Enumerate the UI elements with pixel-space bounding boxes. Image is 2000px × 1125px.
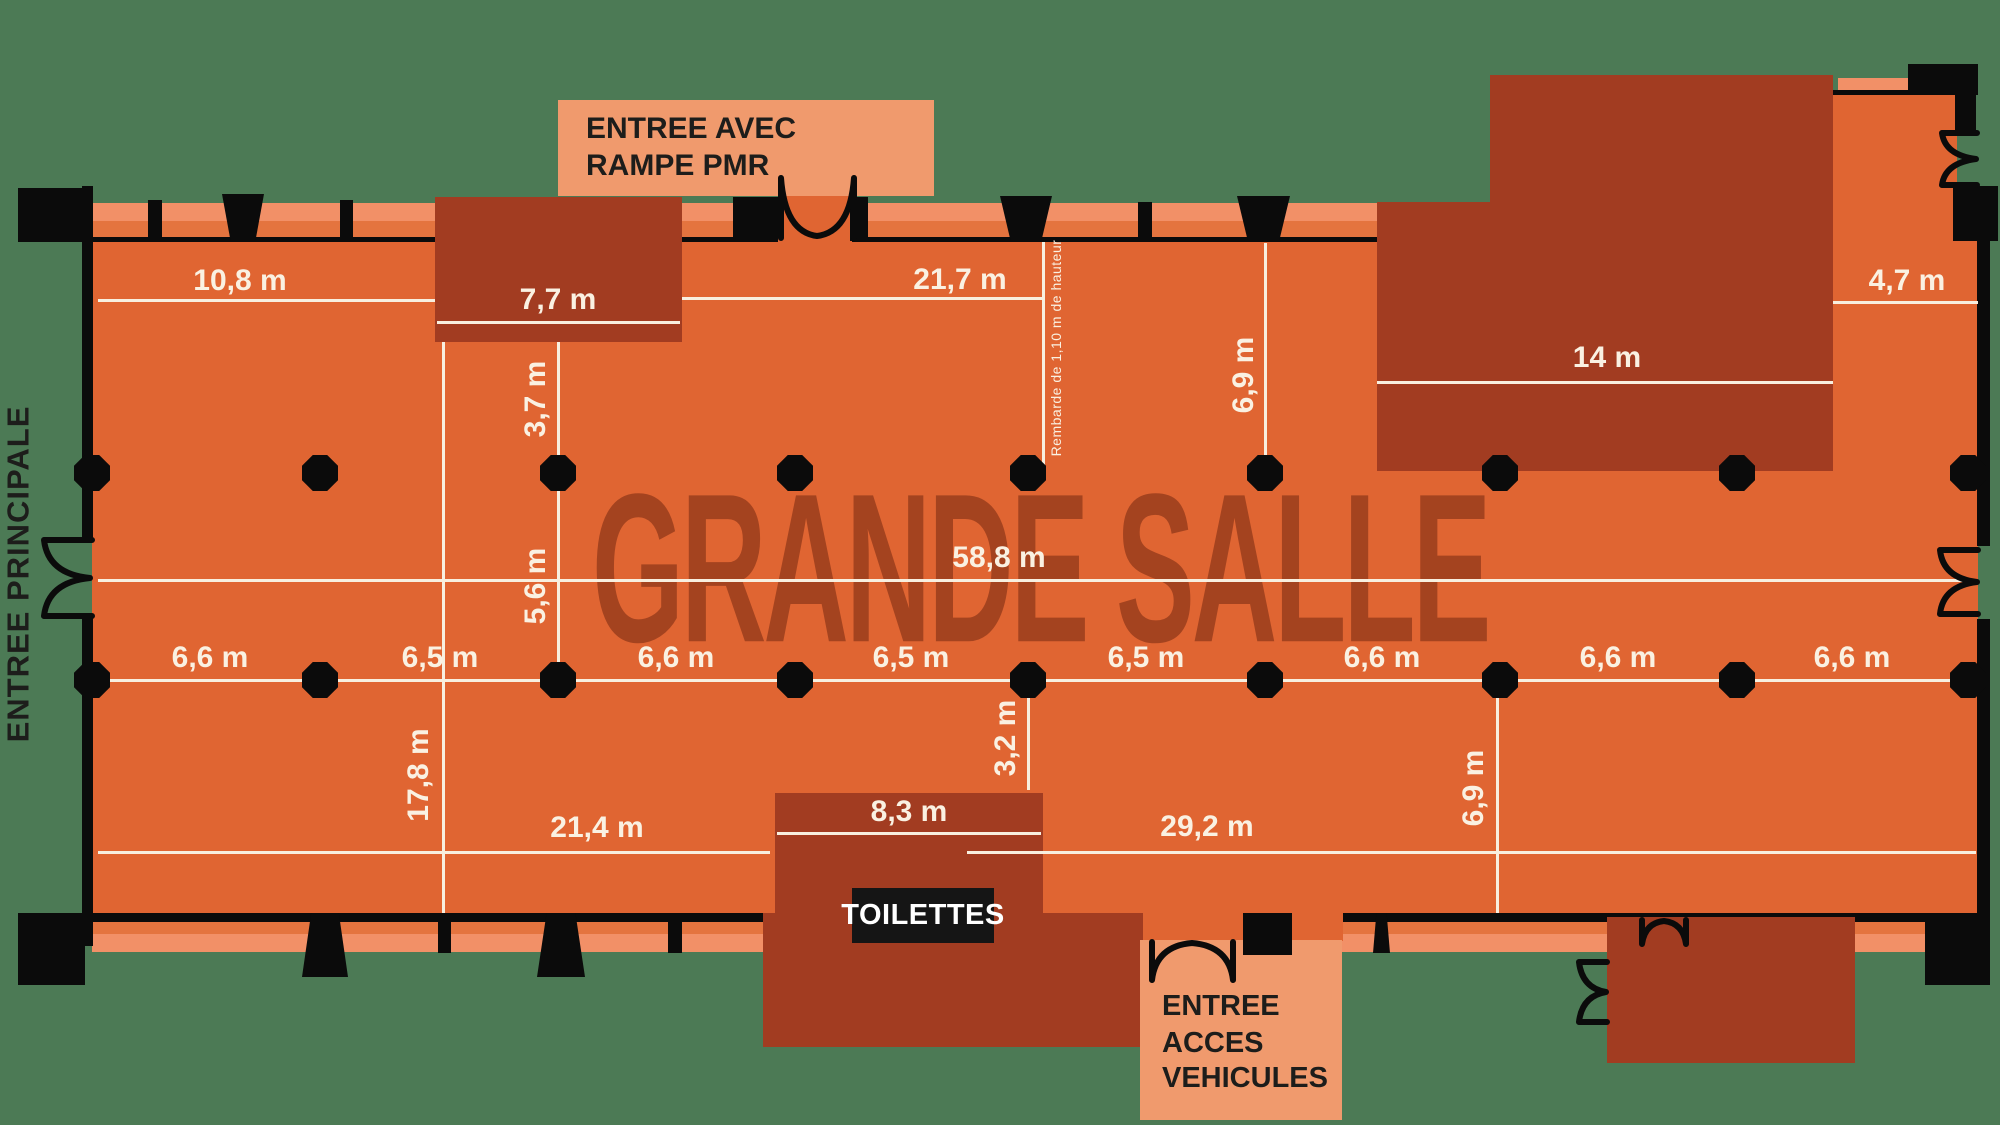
top-wall-post <box>148 200 162 238</box>
column <box>1719 662 1755 698</box>
dim-label: 21,4 m <box>550 811 643 845</box>
vehicle-entrance-label-line2: ACCES <box>1162 1025 1264 1062</box>
right-wall <box>1977 619 1990 914</box>
right-wall <box>1977 240 1990 546</box>
dim-line-8-3 <box>777 832 1041 835</box>
bay-label: 6,6 m <box>638 641 715 675</box>
top-wall-post <box>1138 202 1152 238</box>
toilets-label: TOILETTES <box>841 899 1004 932</box>
dim-line-3-2 <box>1027 695 1030 790</box>
dim-line-14 <box>1377 381 1833 384</box>
right-upper-door-icon <box>1936 126 1990 192</box>
column <box>540 455 576 491</box>
dim-line-7-7 <box>437 321 680 324</box>
dim-label: 6,9 m <box>1457 750 1491 827</box>
column <box>1719 455 1755 491</box>
dim-line-21-7 <box>682 297 1043 300</box>
north-window-sill <box>1838 78 1910 90</box>
column <box>1010 455 1046 491</box>
pmr-entrance-label-line1: ENTREE AVEC <box>586 110 796 147</box>
column <box>74 662 110 698</box>
pmr-entrance-label-line2: RAMPE PMR <box>586 147 769 184</box>
dim-label: 17,8 m <box>402 728 436 821</box>
top-wall-post <box>340 200 353 238</box>
dim-line-6-9-top <box>1264 243 1267 465</box>
vehicle-door-pillar <box>1243 913 1292 955</box>
railing-note: Rembarde de 1,10 m de hauteur <box>1048 240 1064 457</box>
dim-label: 3,7 m <box>519 361 553 438</box>
column <box>1950 662 1986 698</box>
annex-top-right-lower <box>1377 202 1833 471</box>
column <box>777 662 813 698</box>
vehicle-entrance-label-line3: VEHICULES <box>1162 1060 1328 1097</box>
dim-label: 29,2 m <box>1160 810 1253 844</box>
dim-label: 3,2 m <box>989 700 1023 777</box>
dim-line-4-7 <box>1833 301 1978 304</box>
bay-label: 6,6 m <box>1580 641 1657 675</box>
column <box>1950 455 1986 491</box>
dim-line-6-9-bottom <box>1496 695 1499 913</box>
vehicle-entrance-label-line1: ENTREE <box>1162 988 1280 1025</box>
dim-line-17-8 <box>442 342 445 913</box>
bay-label: 6,5 m <box>1108 641 1185 675</box>
railing-line <box>1042 242 1045 465</box>
corner-block-top-right-inner <box>1953 186 1998 241</box>
dim-label: 7,7 m <box>520 283 597 317</box>
dim-label: 58,8 m <box>952 541 1045 575</box>
bottom-wall-post <box>668 913 682 953</box>
dim-line-3-7-5-6 <box>557 342 560 680</box>
bay-label: 6,6 m <box>172 641 249 675</box>
bay-label: 6,6 m <box>1344 641 1421 675</box>
main-entrance-door-icon <box>28 532 98 626</box>
vehicle-entrance-door-icon <box>1140 936 1242 988</box>
bay-label: 6,5 m <box>873 641 950 675</box>
annex-top-right-upper <box>1490 75 1833 202</box>
dim-label: 8,3 m <box>871 795 948 829</box>
dim-line-21-4 <box>98 851 770 854</box>
pmr-entrance-door-icon <box>770 170 860 242</box>
annex-top-door-icon <box>1632 914 1696 950</box>
annex-left-door-icon <box>1574 954 1614 1030</box>
dim-label: 6,9 m <box>1227 337 1261 414</box>
column <box>1247 455 1283 491</box>
dim-label: 5,6 m <box>519 548 553 625</box>
column <box>540 662 576 698</box>
floor-plan: GRANDE SALLE <box>0 0 2000 1125</box>
dim-line-58-8 <box>98 579 1976 582</box>
corner-block-bottom-left <box>18 913 85 985</box>
dim-label: 4,7 m <box>1869 264 1946 298</box>
bay-label: 6,5 m <box>402 641 479 675</box>
dim-line-10-8 <box>98 299 435 302</box>
corner-block-top-left <box>18 188 85 242</box>
dim-label: 10,8 m <box>193 264 286 298</box>
corner-block-top-right-outer <box>1908 64 1978 95</box>
dim-label: 14 m <box>1573 341 1641 375</box>
column <box>1010 662 1046 698</box>
bay-label: 6,6 m <box>1814 641 1891 675</box>
column <box>1482 455 1518 491</box>
dim-line-29-2 <box>967 851 1976 854</box>
column <box>302 662 338 698</box>
dim-label: 21,7 m <box>913 263 1006 297</box>
right-middle-door-icon <box>1934 542 1988 622</box>
column <box>1247 662 1283 698</box>
bottom-wall-post <box>438 913 451 953</box>
main-entrance-label: ENTREE PRINCIPALE <box>0 406 37 743</box>
corner-block-bottom-right <box>1925 913 1990 985</box>
toilets-label-box: TOILETTES <box>852 888 994 943</box>
column <box>777 455 813 491</box>
column <box>1482 662 1518 698</box>
